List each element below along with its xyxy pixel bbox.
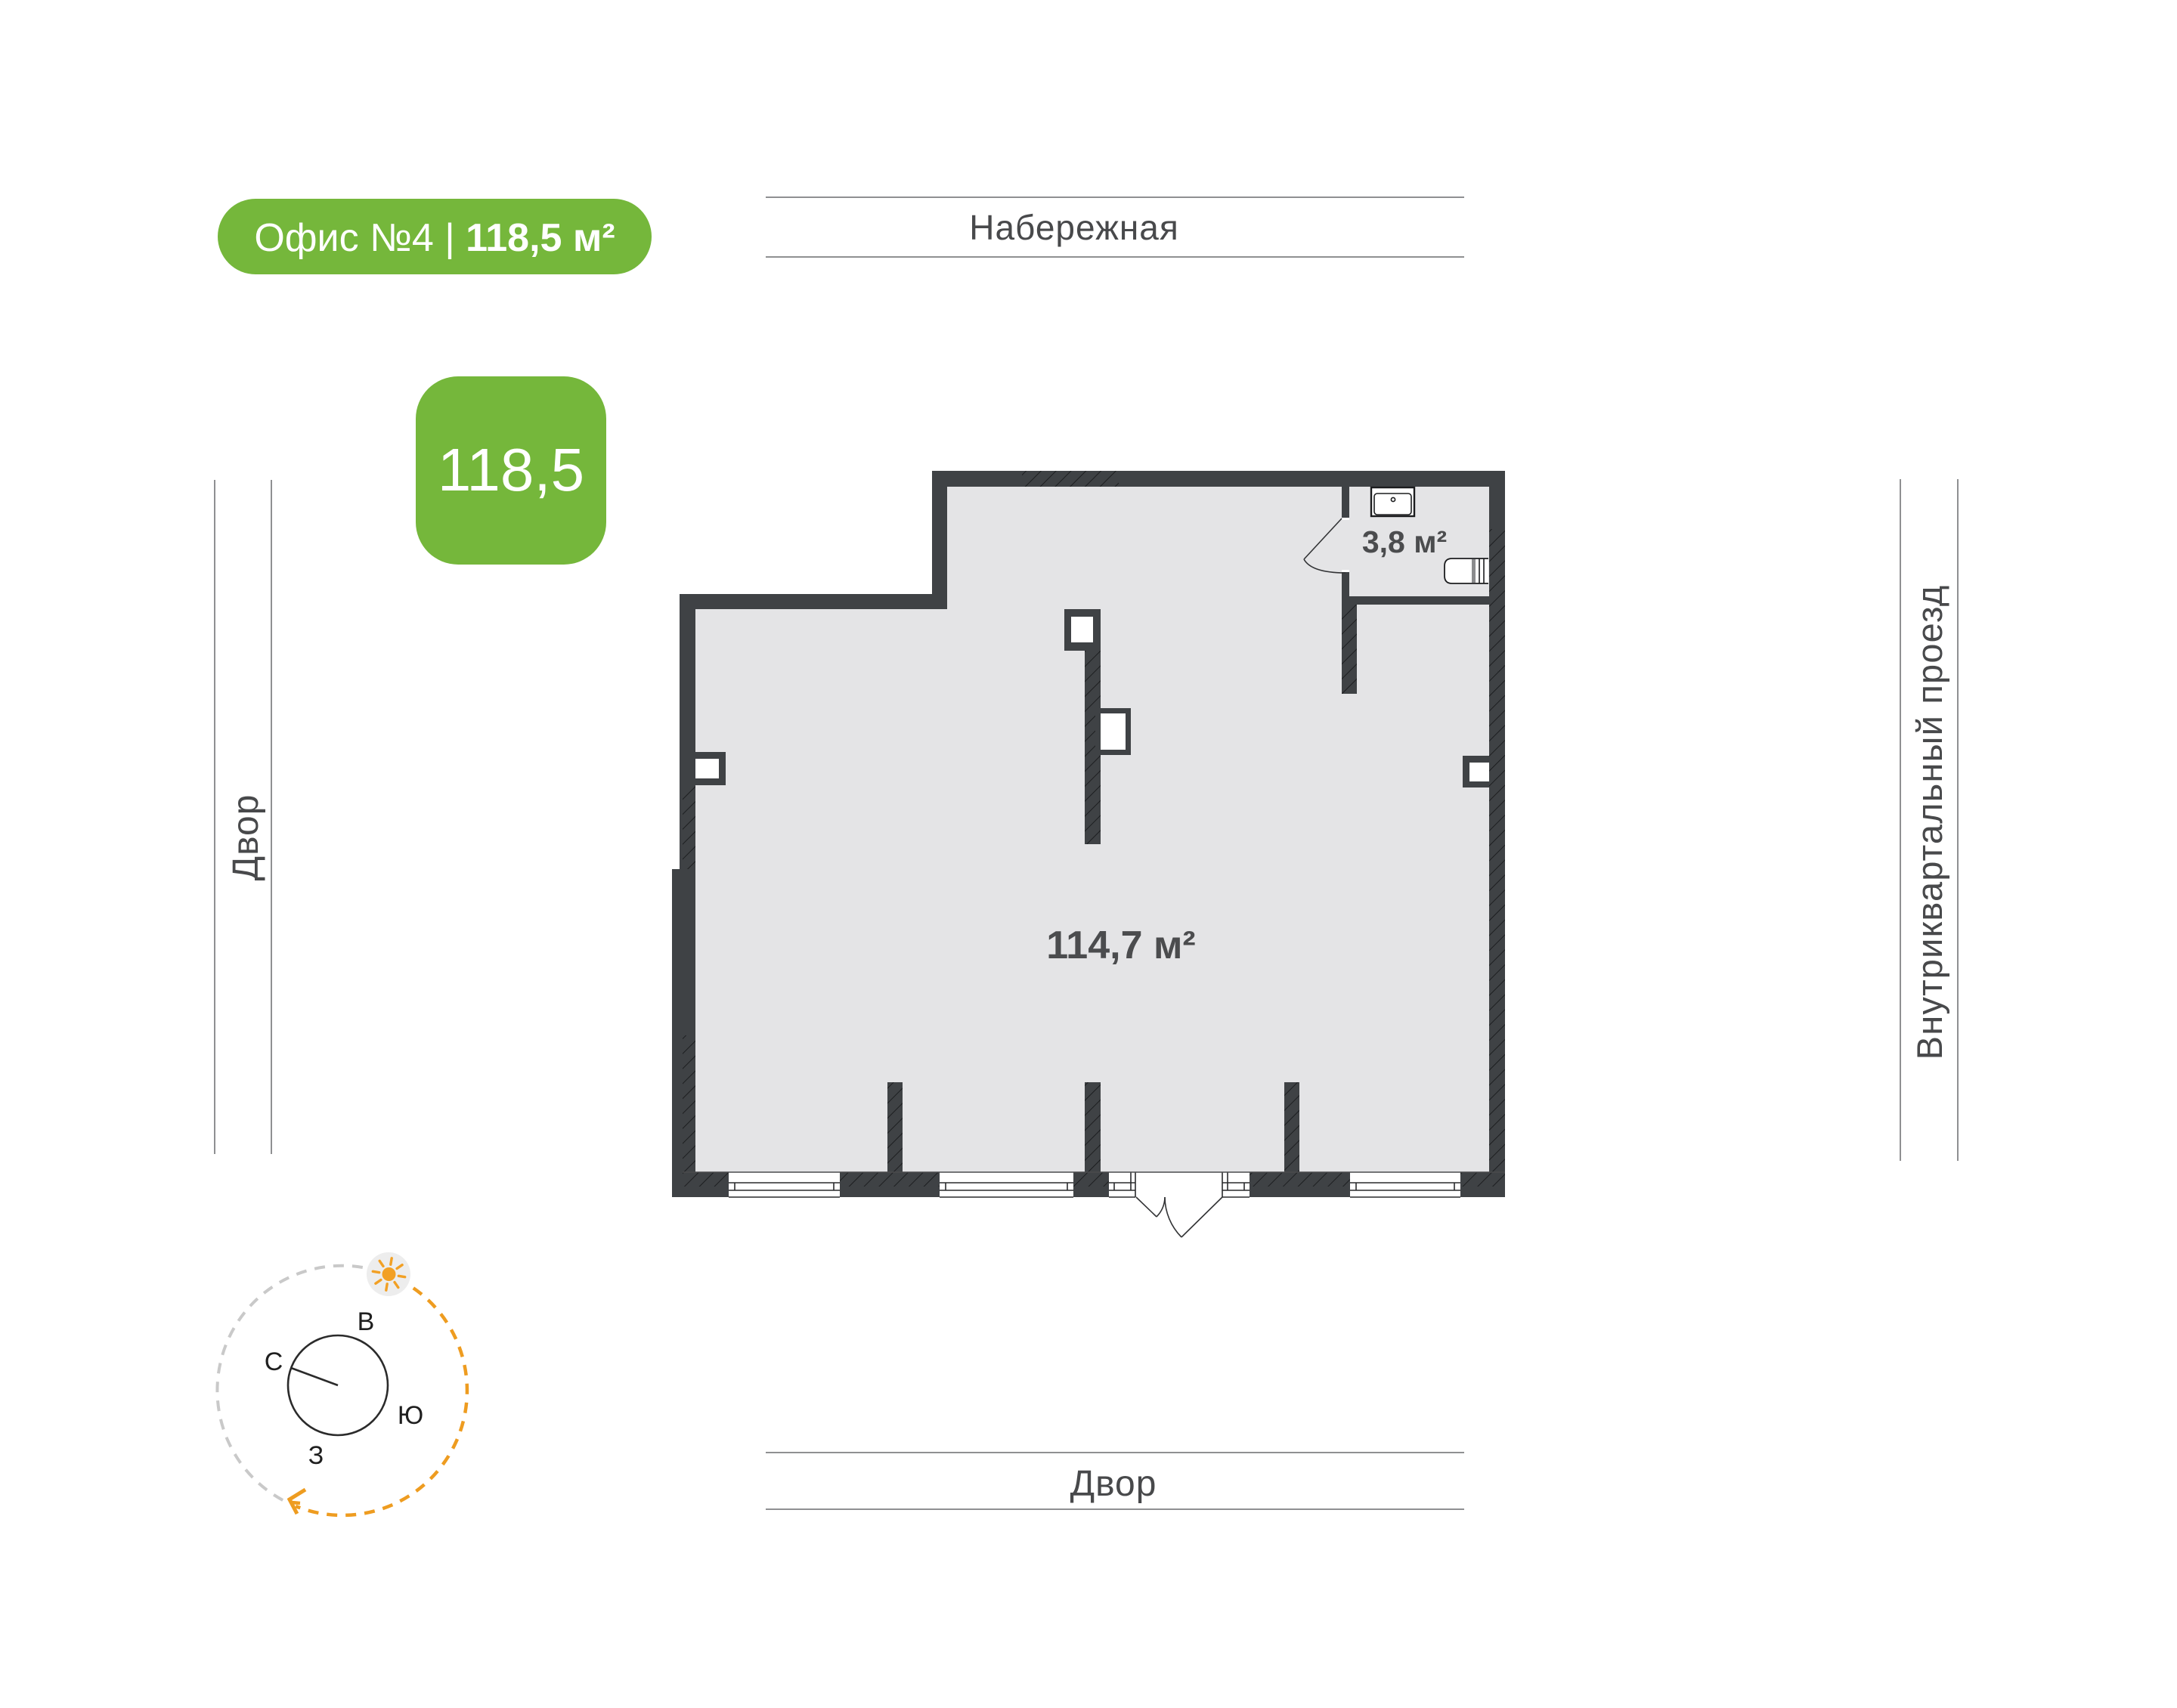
svg-text:З: З [308, 1441, 324, 1470]
svg-text:Ю: Ю [398, 1401, 423, 1430]
svg-text:114,7 м²: 114,7 м² [1046, 924, 1196, 967]
svg-text:Двор: Двор [226, 794, 266, 881]
svg-text:118,5: 118,5 [438, 436, 584, 503]
svg-text:3,8 м²: 3,8 м² [1362, 524, 1447, 559]
svg-text:Двор: Двор [1070, 1464, 1157, 1504]
svg-text:Внутриквартальный проезд: Внутриквартальный проезд [1909, 585, 1949, 1060]
svg-text:Офис №4 | 118,5 м²: Офис №4 | 118,5 м² [254, 216, 615, 260]
svg-text:Набережная: Набережная [969, 208, 1179, 247]
svg-text:С: С [265, 1348, 283, 1376]
svg-text:В: В [358, 1307, 375, 1336]
